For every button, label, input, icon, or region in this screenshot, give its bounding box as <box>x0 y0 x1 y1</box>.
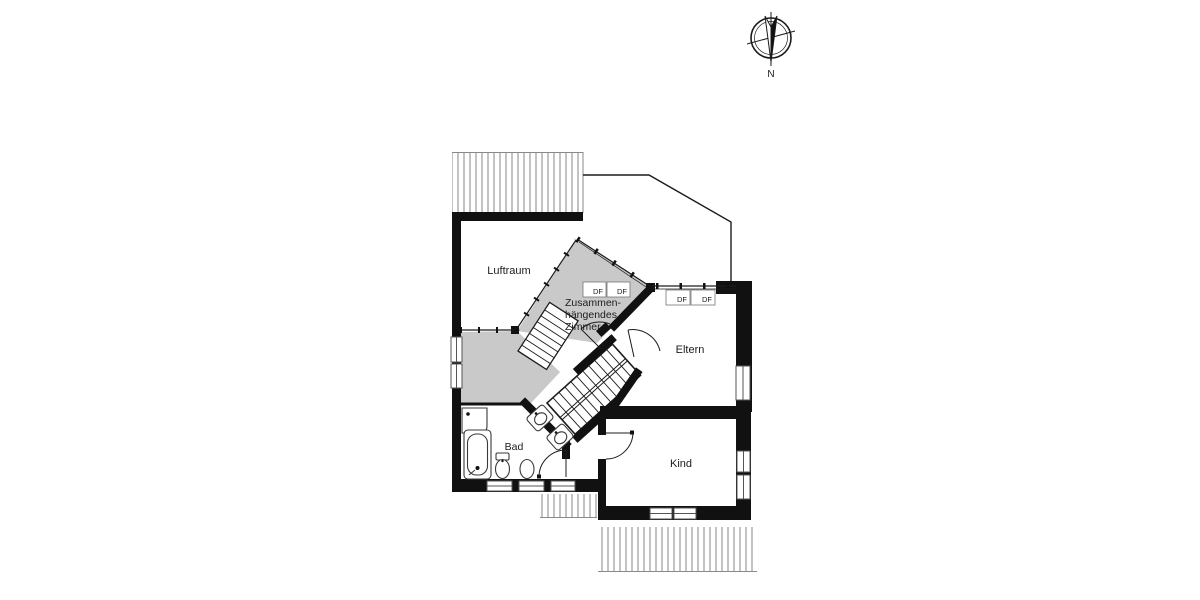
door-kind <box>606 431 634 460</box>
eltern-bottom-wall <box>600 406 751 419</box>
north-label: N <box>767 69 774 80</box>
label-line: Zusammen- <box>565 297 622 309</box>
floor-plan-drawing: DF DF DF DF <box>0 0 1200 600</box>
df-window-label: DF <box>702 295 712 304</box>
window-kind-east-2 <box>737 475 750 499</box>
toilet-icon <box>496 453 510 479</box>
window-bad-south-1 <box>487 481 512 491</box>
bidet-icon <box>520 460 534 479</box>
window-kind-east-1 <box>737 451 750 472</box>
door-eltern <box>628 330 660 357</box>
room-label-kind: Kind <box>670 458 692 470</box>
floor-plan-page: DF DF DF DF <box>0 0 1200 600</box>
room-label-bad: Bad <box>505 441 524 453</box>
window-west-1 <box>451 337 462 362</box>
compass-needle-east <box>771 16 777 62</box>
roof-hatch-bottom <box>598 527 757 572</box>
window-west-2 <box>451 364 462 388</box>
df-window-label: DF <box>617 287 627 296</box>
kind-left-wall-lower <box>598 459 606 520</box>
roof-hatch-top <box>452 152 583 213</box>
window-kind-south-2 <box>674 508 696 519</box>
bathtub-icon <box>464 430 491 479</box>
room-label-luftraum: Luftraum <box>487 265 530 277</box>
label-line: hängendes <box>565 309 617 321</box>
door-bad <box>537 450 566 479</box>
df-window-label: DF <box>677 295 687 304</box>
window-bad-south-2 <box>519 481 544 491</box>
window-eltern-east <box>736 366 750 400</box>
window-bad-south-3 <box>551 481 575 491</box>
room-label-eltern: Eltern <box>676 344 705 356</box>
kind-left-wall-upper <box>598 413 606 435</box>
window-kind-south-1 <box>650 508 672 519</box>
roof-hatch-bottom-small <box>540 494 597 518</box>
shower-icon <box>462 408 487 433</box>
compass-rose: N <box>747 12 795 80</box>
luftraum-top-wall <box>452 212 583 221</box>
df-window-label: DF <box>593 287 603 296</box>
label-line: Zimmer <box>565 321 601 333</box>
